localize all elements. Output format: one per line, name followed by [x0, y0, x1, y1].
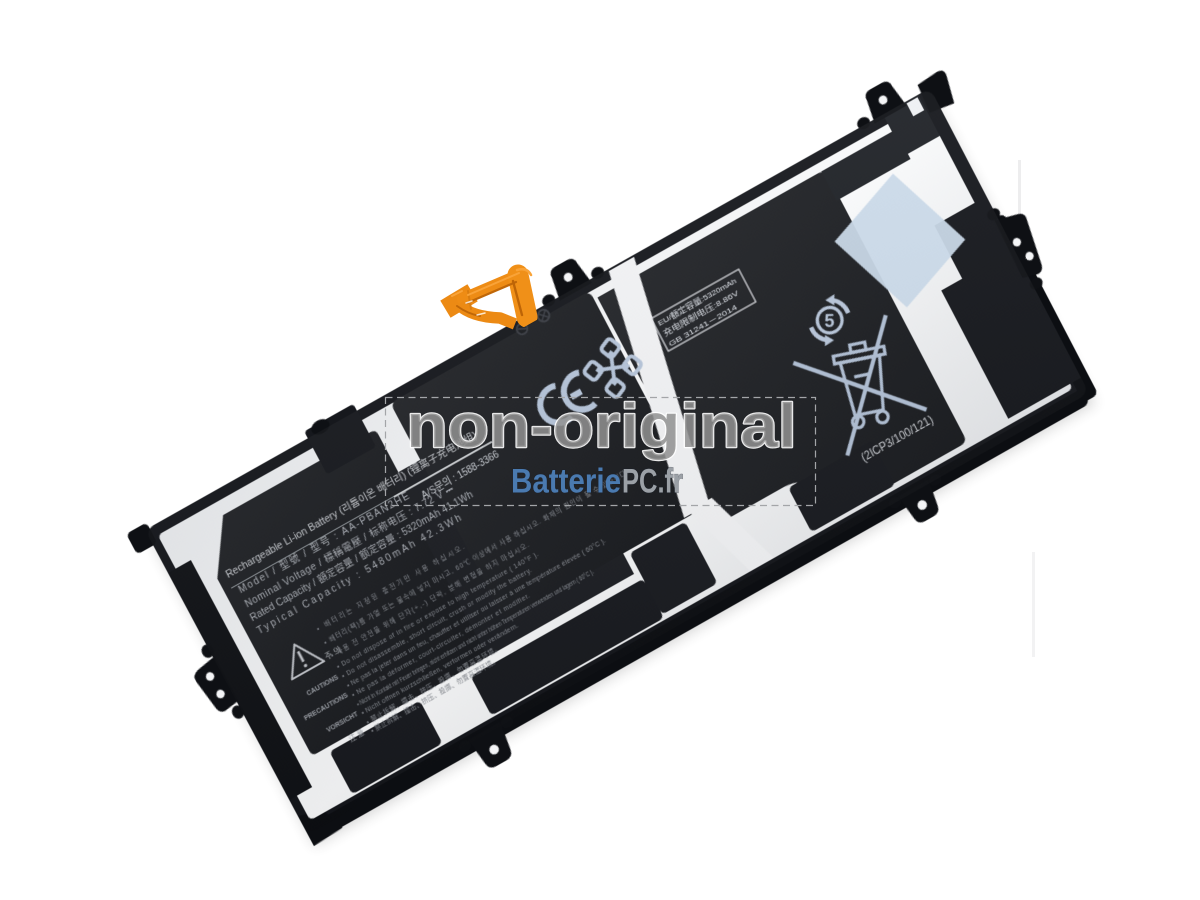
svg-text:non-original: non-original	[406, 391, 796, 461]
svg-text:PC.fr: PC.fr	[622, 463, 683, 501]
svg-text:Batterie: Batterie	[511, 463, 621, 501]
